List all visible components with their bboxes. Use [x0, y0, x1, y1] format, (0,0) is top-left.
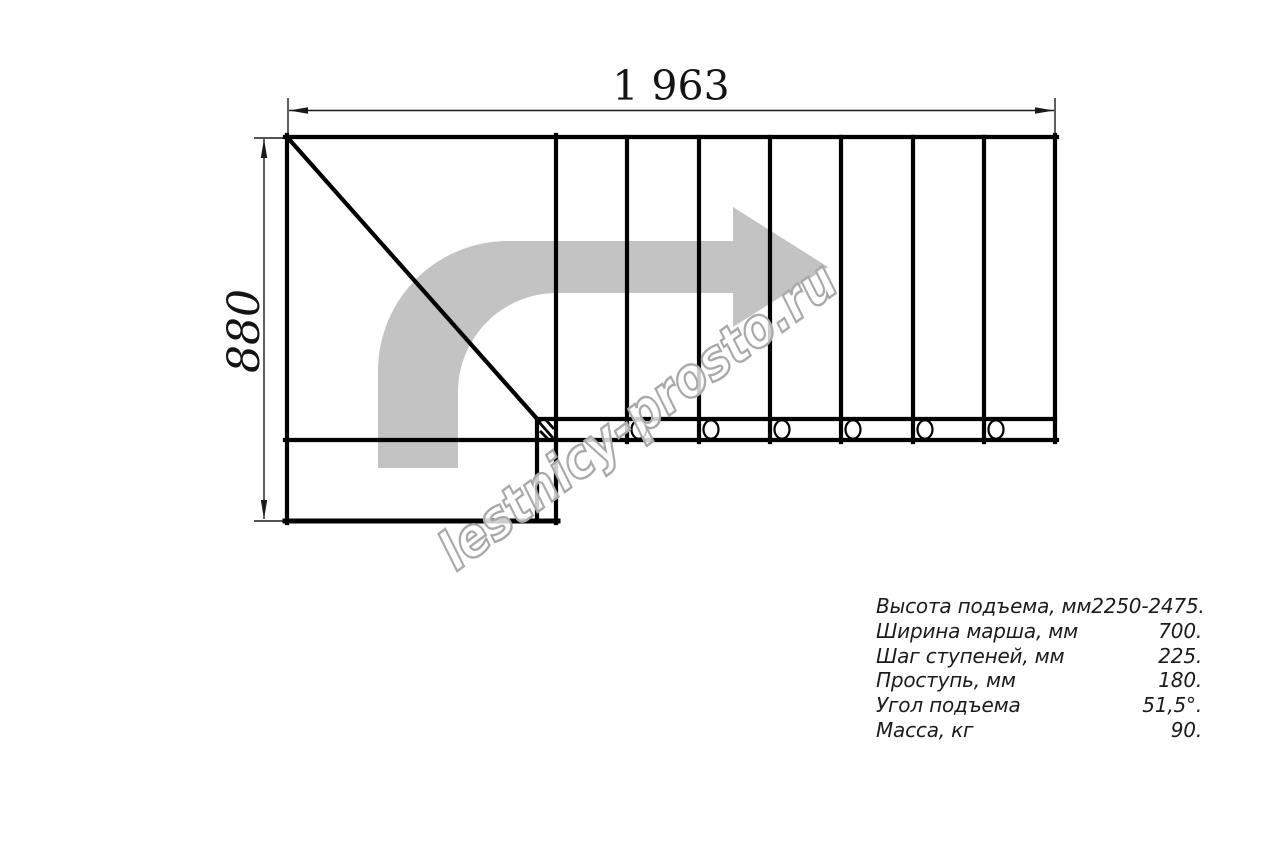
spec-label: Проступь, мм: [876, 668, 1016, 693]
spec-value: 700.: [1158, 619, 1202, 644]
baluster-circle: [775, 420, 790, 438]
spec-value: 51,5°.: [1142, 693, 1202, 718]
spec-row-mass: Масса, кг 90.: [876, 718, 1202, 743]
spec-row-step-pitch: Шаг ступеней, мм 225.: [876, 644, 1202, 669]
side-dimension-label: 880: [219, 289, 270, 373]
spec-row-flight-width: Ширина марша, мм 700.: [876, 619, 1202, 644]
baluster-circles: [632, 420, 1004, 438]
spec-value: 180.: [1158, 668, 1202, 693]
baluster-circle: [989, 420, 1004, 438]
post-hatching: [539, 420, 554, 439]
spec-row-tread: Проступь, мм 180.: [876, 668, 1202, 693]
spec-row-angle: Угол подъема 51,5°.: [876, 693, 1202, 718]
spec-label: Высота подъема, мм: [876, 594, 1091, 619]
spec-label: Шаг ступеней, мм: [876, 644, 1064, 669]
spec-row-height: Высота подъема, мм 2250-2475.: [876, 594, 1202, 619]
specs-table: Высота подъема, мм 2250-2475. Ширина мар…: [876, 594, 1202, 743]
spec-label: Угол подъема: [876, 693, 1021, 718]
blueprint-page: 1 963 880 lestnicy-prosto.ru Высота подъ…: [0, 0, 1280, 853]
baluster-circle: [918, 420, 933, 438]
baluster-circle: [846, 420, 861, 438]
spec-label: Масса, кг: [876, 718, 973, 743]
top-dimension-label: 1 963: [612, 62, 729, 110]
dimension-lines: [254, 98, 1055, 521]
spec-value: 225.: [1158, 644, 1202, 669]
spec-value: 90.: [1171, 718, 1202, 743]
spec-value: 2250-2475.: [1091, 594, 1204, 619]
baluster-circle: [704, 420, 719, 438]
spec-label: Ширина марша, мм: [876, 619, 1078, 644]
